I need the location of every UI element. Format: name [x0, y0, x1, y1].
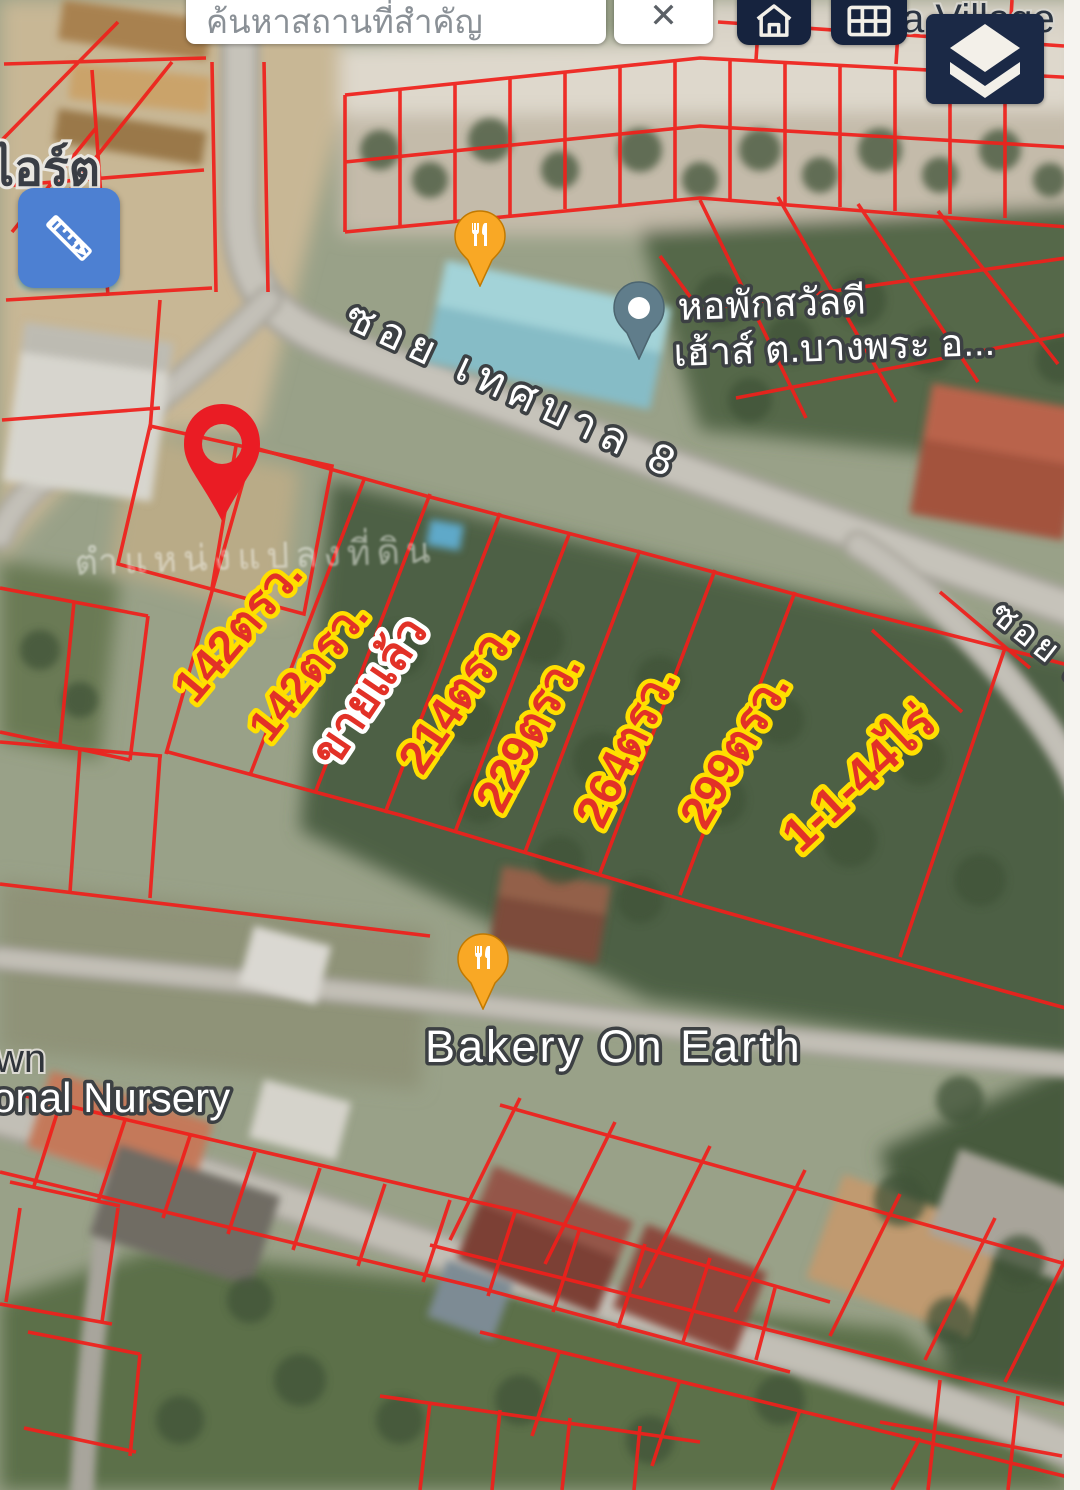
pin-dot — [628, 297, 650, 319]
home-button[interactable] — [737, 0, 811, 45]
restaurant-pin-shape — [458, 934, 508, 1009]
red-location-pin[interactable] — [182, 402, 262, 523]
grid-button[interactable] — [831, 0, 907, 45]
layers-button[interactable] — [926, 14, 1044, 104]
close-search-button[interactable]: ✕ — [614, 0, 713, 44]
restaurant-pin-bakery[interactable] — [457, 933, 509, 1010]
restaurant-pin-shape — [455, 211, 505, 286]
satellite-map[interactable] — [0, 0, 1080, 1490]
screen-edge-strip — [1064, 0, 1080, 1490]
layers-icon — [926, 14, 1044, 104]
grid-icon — [846, 5, 892, 37]
close-icon: ✕ — [649, 0, 678, 36]
measure-button[interactable] — [18, 188, 120, 288]
dormitory-pin-shape — [614, 282, 664, 359]
restaurant-pin-top[interactable] — [454, 210, 506, 287]
search-bar[interactable] — [186, 0, 606, 44]
home-icon — [753, 1, 795, 39]
map-app-screen: ตำแหน่งแปลงที่ดิน ไอร์ต a Village wn ซอย… — [0, 0, 1080, 1490]
dormitory-pin[interactable] — [612, 281, 666, 360]
red-pin-shape — [184, 404, 260, 521]
search-input[interactable] — [186, 0, 606, 44]
pencil-ruler-icon — [34, 203, 104, 273]
